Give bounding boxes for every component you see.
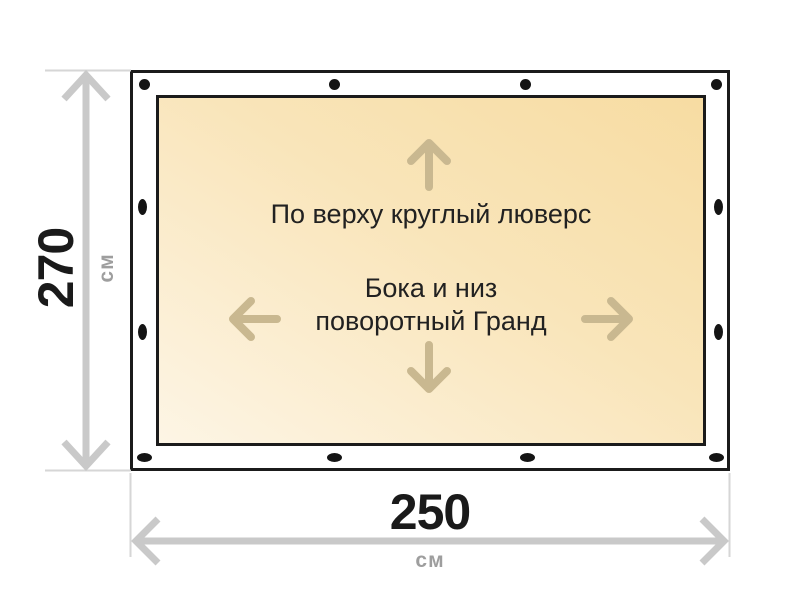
grommet-icon (329, 79, 340, 90)
top-fastening-label: По верху круглый люверс (156, 198, 706, 231)
side-fastening-line1: Бока и низ (156, 272, 706, 305)
grommet-icon (138, 324, 147, 340)
grommet-icon (327, 453, 342, 462)
grommet-icon (711, 79, 722, 90)
grommet-icon (520, 453, 535, 462)
height-unit: см (95, 228, 119, 308)
dimension-diagram: По верху круглый люверс Бока и низ повор… (0, 0, 800, 600)
grommet-icon (138, 199, 147, 215)
grommet-icon (714, 199, 723, 215)
side-fastening-line2: поворотный Гранд (156, 305, 706, 338)
grommet-icon (137, 453, 152, 462)
height-value: 270 (26, 188, 86, 348)
fabric-area (156, 95, 706, 446)
width-value: 250 (330, 486, 530, 538)
grommet-icon (709, 453, 724, 462)
grommet-icon (714, 324, 723, 340)
side-fastening-label: Бока и низ поворотный Гранд (156, 272, 706, 338)
width-unit: см (330, 549, 530, 573)
grommet-icon (520, 79, 531, 90)
grommet-icon (139, 79, 150, 90)
